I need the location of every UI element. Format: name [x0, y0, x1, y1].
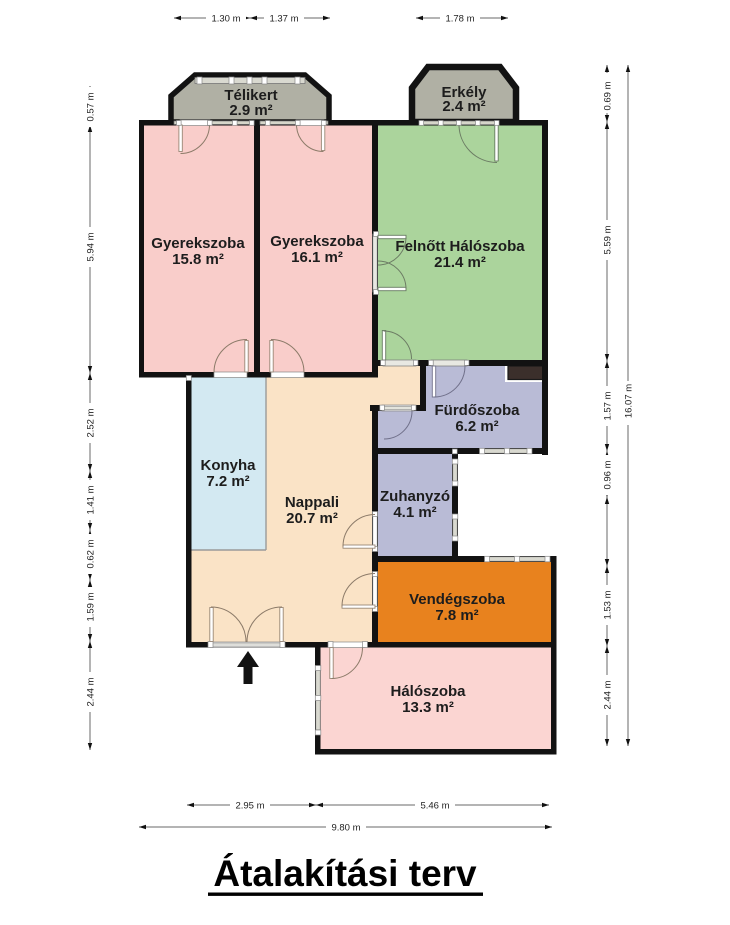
svg-text:Nappali: Nappali	[285, 494, 339, 511]
svg-text:2.44 m: 2.44 m	[603, 680, 614, 709]
svg-text:1.41 m: 1.41 m	[86, 485, 97, 514]
svg-text:2.52 m: 2.52 m	[86, 408, 97, 437]
svg-text:16.1 m²: 16.1 m²	[291, 249, 343, 266]
svg-text:0.96 m: 0.96 m	[603, 460, 614, 489]
svg-text:1.57 m: 1.57 m	[603, 391, 614, 420]
svg-text:0.57 m: 0.57 m	[86, 92, 97, 121]
svg-text:9.80 m: 9.80 m	[331, 823, 360, 834]
svg-text:2.95 m: 2.95 m	[235, 801, 264, 812]
svg-text:1.78 m: 1.78 m	[445, 14, 474, 25]
svg-text:5.59 m: 5.59 m	[603, 225, 614, 254]
svg-text:Zuhanyzó: Zuhanyzó	[380, 488, 450, 505]
svg-text:1.59 m: 1.59 m	[86, 592, 97, 621]
svg-text:7.8 m²: 7.8 m²	[435, 607, 478, 624]
svg-text:Átalakítási terv: Átalakítási terv	[213, 853, 477, 894]
svg-text:5.94 m: 5.94 m	[86, 232, 97, 261]
svg-text:Hálószoba: Hálószoba	[390, 683, 466, 700]
svg-text:7.2 m²: 7.2 m²	[206, 473, 249, 490]
svg-text:16.07 m: 16.07 m	[624, 384, 635, 418]
svg-text:0.69 m: 0.69 m	[603, 81, 614, 110]
svg-text:5.46 m: 5.46 m	[420, 801, 449, 812]
svg-text:15.8 m²: 15.8 m²	[172, 251, 224, 268]
svg-text:0.62 m: 0.62 m	[86, 539, 97, 568]
svg-text:Felnőtt Hálószoba: Felnőtt Hálószoba	[395, 238, 525, 255]
svg-text:2.9 m²: 2.9 m²	[229, 102, 272, 119]
svg-text:Vendégszoba: Vendégszoba	[409, 591, 506, 608]
svg-text:1.53 m: 1.53 m	[603, 590, 614, 619]
svg-text:13.3 m²: 13.3 m²	[402, 699, 454, 716]
svg-text:1.30 m: 1.30 m	[211, 14, 240, 25]
svg-text:Fürdőszoba: Fürdőszoba	[435, 402, 521, 419]
svg-text:20.7 m²: 20.7 m²	[286, 510, 338, 527]
svg-text:6.2 m²: 6.2 m²	[455, 418, 498, 435]
svg-text:21.4 m²: 21.4 m²	[434, 254, 486, 271]
svg-text:4.1 m²: 4.1 m²	[393, 504, 436, 521]
svg-text:1.37 m: 1.37 m	[269, 14, 298, 25]
svg-text:2.4 m²: 2.4 m²	[442, 98, 485, 115]
svg-text:Konyha: Konyha	[200, 457, 256, 474]
svg-text:Gyerekszoba: Gyerekszoba	[270, 233, 364, 250]
svg-text:Gyerekszoba: Gyerekszoba	[151, 235, 245, 252]
svg-text:2.44 m: 2.44 m	[86, 677, 97, 706]
